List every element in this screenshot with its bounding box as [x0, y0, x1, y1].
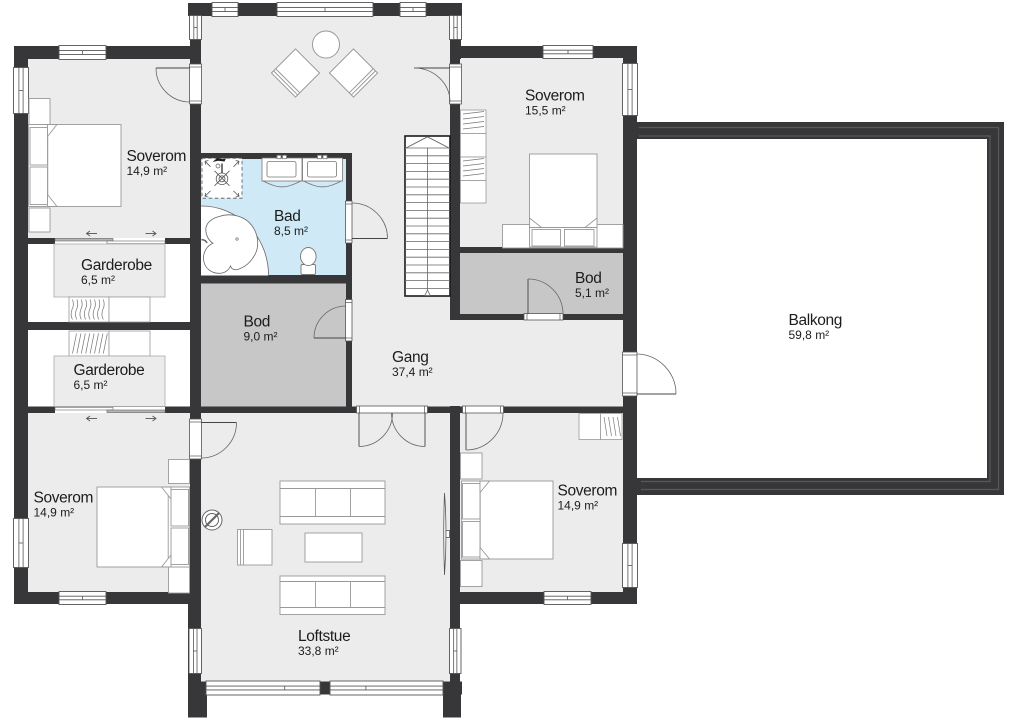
svg-text:Soverom: Soverom	[34, 490, 94, 507]
svg-text:Garderobe: Garderobe	[74, 362, 145, 379]
svg-text:Bad: Bad	[274, 208, 301, 225]
svg-text:Bod: Bod	[244, 314, 271, 331]
svg-text:14,9 m²: 14,9 m²	[34, 506, 75, 520]
svg-text:37,4 m²: 37,4 m²	[392, 365, 433, 379]
svg-text:Gang: Gang	[392, 349, 429, 366]
svg-text:33,8 m²: 33,8 m²	[298, 644, 339, 658]
svg-text:6,5 m²: 6,5 m²	[74, 378, 108, 392]
svg-text:8,5 m²: 8,5 m²	[274, 224, 308, 238]
svg-text:Bod: Bod	[575, 270, 602, 287]
svg-text:Balkong: Balkong	[789, 312, 843, 329]
svg-text:59,8 m²: 59,8 m²	[789, 328, 830, 342]
svg-text:Garderobe: Garderobe	[81, 257, 152, 274]
svg-text:9,0 m²: 9,0 m²	[244, 330, 278, 344]
svg-text:Soverom: Soverom	[558, 483, 618, 500]
svg-text:Soverom: Soverom	[127, 148, 187, 165]
svg-text:Loftstue: Loftstue	[298, 628, 350, 645]
svg-text:Soverom: Soverom	[525, 88, 585, 105]
svg-text:14,9 m²: 14,9 m²	[558, 499, 599, 513]
svg-text:5,1 m²: 5,1 m²	[575, 286, 609, 300]
svg-text:14,9 m²: 14,9 m²	[127, 164, 168, 178]
svg-text:6,5 m²: 6,5 m²	[81, 273, 115, 287]
svg-text:15,5 m²: 15,5 m²	[525, 104, 566, 118]
